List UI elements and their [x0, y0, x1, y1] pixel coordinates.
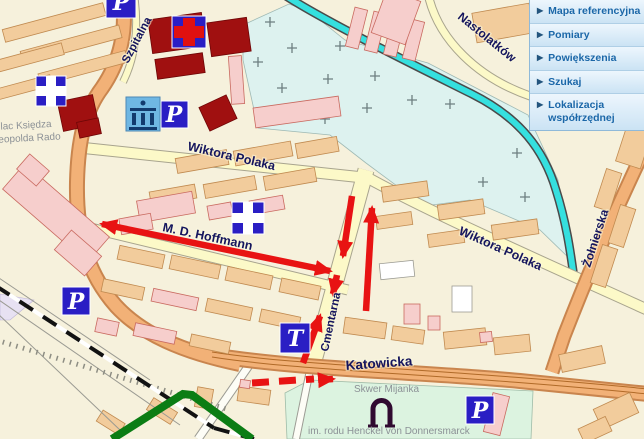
- parking-icon: P: [466, 396, 494, 424]
- tool-panel: ▶ Mapa referencyjna ▶ Pomiary ▶ Powiększ…: [529, 0, 644, 131]
- parking-icon: P: [62, 287, 90, 315]
- arrow-cmentarna-northbound: [366, 208, 372, 311]
- chapel-cross-icon: [36, 76, 66, 106]
- parking-icon: P: [161, 101, 188, 128]
- place-label-skwer-dedication: im. rodu Henckel von Donnersmarck: [308, 426, 471, 437]
- panel-item-label: Lokalizacja współrzędnej: [548, 99, 641, 124]
- panel-item-lokalizacja-wspolrzednej[interactable]: ▶ Lokalizacja współrzędnej: [530, 94, 644, 129]
- submenu-arrow-icon: ▶: [537, 77, 543, 87]
- panel-item-pomiary[interactable]: ▶ Pomiary: [530, 24, 644, 48]
- parking-icon: P: [106, 0, 136, 18]
- svg-text:P: P: [112, 0, 131, 16]
- submenu-arrow-icon: ▶: [537, 100, 543, 110]
- museum-icon: [126, 97, 160, 131]
- svg-text:P: P: [471, 398, 490, 424]
- arrow-junction-southbound: [333, 275, 337, 294]
- panel-item-label: Mapa referencyjna: [548, 5, 640, 18]
- hospital-cross-icon: [172, 16, 206, 48]
- panel-item-label: Pomiary: [548, 29, 589, 42]
- panel-item-label: Powiększenia: [548, 52, 616, 65]
- place-label-plac-line2: Leopolda Rado: [0, 131, 61, 146]
- panel-item-label: Szukaj: [548, 76, 581, 89]
- panel-item-mapa-referencyjna[interactable]: ▶ Mapa referencyjna: [530, 0, 644, 24]
- panel-item-powiekszenia[interactable]: ▶ Powiększenia: [530, 47, 644, 71]
- arrow-katowicka-head: [320, 379, 333, 380]
- svg-text:P: P: [67, 289, 86, 315]
- svg-text:P: P: [165, 102, 184, 128]
- place-label-plac-line1: Plac Księdza: [0, 119, 52, 133]
- submenu-arrow-icon: ▶: [537, 30, 543, 40]
- submenu-arrow-icon: ▶: [537, 6, 543, 16]
- pharmacy-cross-icon: [232, 202, 264, 234]
- map-application: P P P: [0, 0, 644, 439]
- submenu-arrow-icon: ▶: [537, 53, 543, 63]
- panel-item-szukaj[interactable]: ▶ Szukaj: [530, 71, 644, 95]
- place-label-skwer: Skwer Mijanka: [354, 384, 419, 395]
- svg-text:T: T: [287, 326, 305, 352]
- theater-icon: T: [280, 323, 310, 353]
